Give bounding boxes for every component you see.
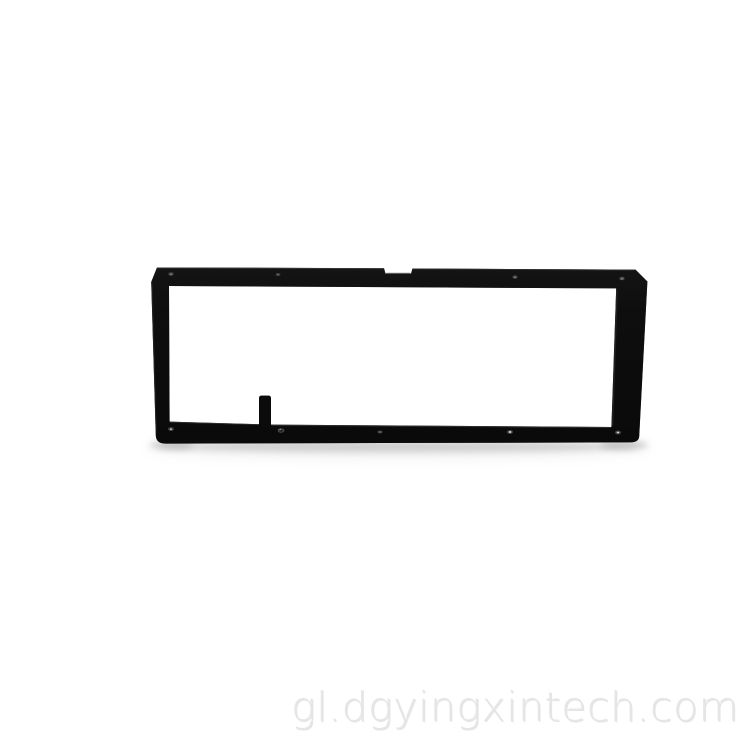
screw-hole bbox=[278, 428, 285, 433]
screw-hole bbox=[619, 277, 624, 281]
product-frame-photo bbox=[0, 0, 750, 750]
screw-hole bbox=[512, 275, 517, 278]
frame-silhouette bbox=[151, 268, 647, 444]
screw-hole bbox=[615, 431, 621, 435]
watermark-text: gl.dgyingxintech.com bbox=[292, 688, 740, 729]
top-edge-highlight bbox=[158, 268, 383, 269]
screw-hole bbox=[168, 427, 174, 431]
frame-shading bbox=[151, 268, 647, 444]
screw-hole bbox=[276, 273, 281, 276]
screw-hole bbox=[168, 272, 173, 276]
frame-edge-highlights bbox=[152, 268, 634, 432]
photo-canvas: gl.dgyingxintech.com bbox=[0, 0, 750, 750]
screw-hole bbox=[507, 430, 513, 434]
screw-hole bbox=[378, 431, 383, 434]
